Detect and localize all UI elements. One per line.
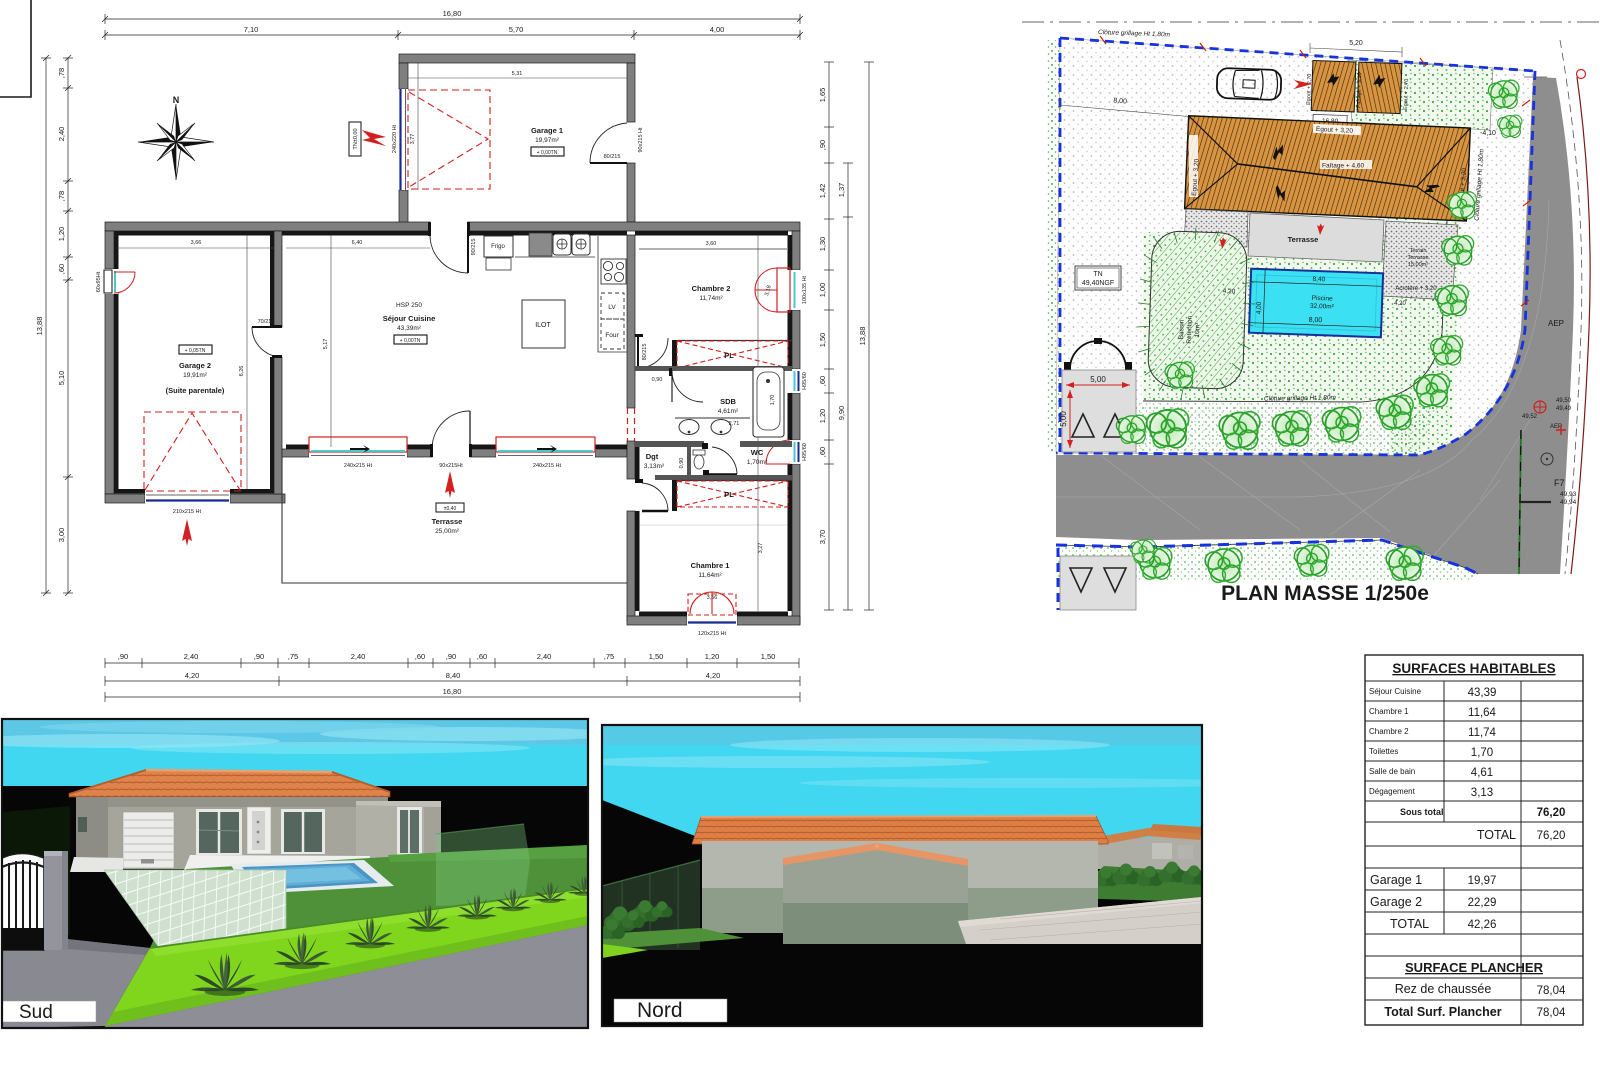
svg-text:4,00: 4,00: [1256, 301, 1263, 314]
svg-text:Chambre 1: Chambre 1: [1369, 707, 1409, 716]
svg-text:3,66: 3,66: [191, 240, 202, 246]
svg-text:Garage 2: Garage 2: [179, 361, 211, 370]
svg-text:Sud: Sud: [19, 1002, 53, 1023]
svg-text:N: N: [173, 95, 180, 105]
svg-text:Faîtage + 4,60: Faîtage + 4,60: [1322, 163, 1364, 170]
svg-text:5,31: 5,31: [512, 71, 523, 77]
svg-text:2,40: 2,40: [537, 652, 552, 661]
svg-text:8,00: 8,00: [1308, 317, 1322, 324]
svg-text:1,70: 1,70: [1471, 747, 1493, 759]
svg-text:43,39: 43,39: [1468, 687, 1497, 699]
svg-text:1,70m²: 1,70m²: [747, 459, 768, 466]
svg-text:1,50: 1,50: [761, 652, 776, 661]
svg-text:60x95Ht: 60x95Ht: [96, 271, 102, 292]
svg-text:42,26: 42,26: [1468, 919, 1497, 931]
svg-text:F7: F7: [1554, 478, 1565, 488]
svg-text:10m³: 10m³: [1194, 322, 1202, 338]
svg-text:3,70: 3,70: [818, 530, 827, 545]
svg-text:8,00: 8,00: [1113, 98, 1127, 106]
svg-text:76,20: 76,20: [1537, 830, 1566, 842]
svg-text:PL: PL: [724, 490, 734, 499]
svg-text:Piscine: Piscine: [1312, 295, 1334, 303]
svg-text:80/215: 80/215: [642, 344, 648, 361]
svg-text:+ 0,05TN: + 0,05TN: [185, 348, 206, 354]
svg-text:6,26: 6,26: [239, 366, 245, 377]
svg-text:H95/60: H95/60: [802, 372, 808, 390]
svg-text:,90: ,90: [818, 140, 827, 150]
svg-text:6,40: 6,40: [352, 240, 363, 246]
svg-text:240x215 Ht: 240x215 Ht: [533, 463, 562, 469]
svg-text:Clôture grillage Ht 1,80m: Clôture grillage Ht 1,80m: [1264, 394, 1337, 402]
svg-text:19,97m²: 19,97m²: [535, 137, 560, 144]
svg-text:2,40: 2,40: [57, 127, 66, 142]
svg-text:78,04: 78,04: [1537, 1007, 1566, 1019]
svg-text:-4,10: -4,10: [1480, 130, 1496, 137]
svg-text:Sous total: Sous total: [1400, 807, 1444, 817]
svg-text:240x215 Ht: 240x215 Ht: [344, 463, 373, 469]
svg-text:3,56: 3,56: [707, 595, 718, 601]
svg-text:1,30: 1,30: [818, 237, 827, 252]
svg-text:Frigo: Frigo: [491, 244, 505, 250]
svg-text:,60: ,60: [818, 447, 827, 457]
svg-text:SDB: SDB: [720, 397, 736, 406]
svg-text:,78: ,78: [57, 191, 66, 201]
svg-text:4,20: 4,20: [1223, 288, 1236, 295]
svg-text:Garage 2: Garage 2: [1370, 895, 1422, 909]
svg-text:TOTAL: TOTAL: [1390, 917, 1429, 931]
svg-text:TN±0,00: TN±0,00: [353, 128, 359, 149]
svg-text:Terrain: Terrain: [1410, 248, 1427, 254]
svg-text:13,88: 13,88: [858, 327, 867, 346]
svg-text:0,90: 0,90: [679, 458, 685, 469]
svg-text:1,20: 1,20: [818, 409, 827, 424]
svg-text:Séjour Cuisine: Séjour Cuisine: [383, 314, 436, 323]
svg-text:0,90: 0,90: [652, 377, 663, 383]
svg-text:,90: ,90: [254, 652, 264, 661]
svg-text:WC: WC: [751, 448, 764, 457]
svg-text:Total Surf. Plancher: Total Surf. Plancher: [1384, 1005, 1501, 1019]
svg-text:4,00: 4,00: [710, 25, 725, 34]
svg-text:Bassin: Bassin: [1178, 319, 1186, 339]
svg-text:43,39m²: 43,39m²: [397, 325, 422, 332]
svg-text:1,20: 1,20: [57, 227, 66, 242]
svg-text:1,50: 1,50: [649, 652, 664, 661]
svg-text:5,00: 5,00: [1090, 375, 1106, 384]
svg-text:Dégagement: Dégagement: [1369, 787, 1416, 796]
svg-text:3,13m²: 3,13m²: [644, 463, 665, 470]
svg-text:Séjour Cuisine: Séjour Cuisine: [1369, 687, 1422, 696]
svg-text:Garage 1: Garage 1: [1370, 873, 1422, 887]
svg-text:,90: ,90: [118, 652, 128, 661]
svg-text:SURFACES HABITABLES: SURFACES HABITABLES: [1392, 661, 1555, 676]
svg-text:4,61: 4,61: [1471, 767, 1493, 779]
svg-text:5,20: 5,20: [1349, 40, 1363, 47]
svg-text:3,00: 3,00: [57, 528, 66, 543]
svg-text:13,88: 13,88: [35, 317, 44, 336]
svg-text:,75: ,75: [288, 652, 298, 661]
svg-text:Garage 1: Garage 1: [531, 126, 563, 135]
svg-text:1,50: 1,50: [818, 333, 827, 348]
svg-text:32,00m²: 32,00m²: [1310, 303, 1335, 311]
svg-text:5,70: 5,70: [509, 25, 524, 34]
svg-text:5,10: 5,10: [57, 371, 66, 386]
svg-text:PL: PL: [724, 351, 734, 360]
svg-text:,78: ,78: [57, 68, 66, 78]
svg-text:19,97: 19,97: [1468, 875, 1497, 887]
svg-text:Chambre 1: Chambre 1: [691, 561, 730, 570]
svg-text:49,93: 49,93: [1560, 491, 1577, 498]
svg-text:25,00m²: 25,00m²: [435, 528, 460, 535]
svg-text:2,40: 2,40: [184, 652, 199, 661]
svg-text:Acrotère + 3,20: Acrotère + 3,20: [1395, 286, 1437, 292]
svg-text:16,80: 16,80: [443, 9, 462, 18]
svg-text:8,40: 8,40: [446, 671, 461, 680]
svg-text:ILOT: ILOT: [535, 322, 551, 329]
svg-text:Toilettes: Toilettes: [1369, 747, 1398, 756]
svg-text:3,13: 3,13: [1471, 787, 1493, 799]
svg-text:Rez de chaussée: Rez de chaussée: [1395, 982, 1492, 996]
svg-text:76,20: 76,20: [1537, 807, 1566, 819]
svg-text:16,80: 16,80: [443, 687, 462, 696]
svg-text:Egout + 2,70: Egout + 2,70: [1306, 74, 1313, 106]
svg-text:49,49: 49,49: [1556, 406, 1572, 412]
svg-text:90x215 Ht: 90x215 Ht: [638, 127, 644, 153]
svg-text:AEP: AEP: [1548, 319, 1564, 328]
svg-text:90/215: 90/215: [471, 239, 477, 256]
svg-text:1,65: 1,65: [818, 88, 827, 103]
svg-text:2,40: 2,40: [351, 652, 366, 661]
svg-text:+ 0,00TN: + 0,00TN: [537, 150, 558, 156]
svg-text:AEP: AEP: [1550, 424, 1562, 430]
svg-text:8,40: 8,40: [1312, 276, 1325, 283]
svg-text:4,61m²: 4,61m²: [718, 408, 739, 415]
svg-text:Chambre 2: Chambre 2: [1369, 727, 1409, 736]
svg-text:2,71: 2,71: [729, 421, 740, 427]
svg-text:240x220 Ht: 240x220 Ht: [392, 124, 398, 153]
svg-text:Egout + 2,70: Egout + 2,70: [1403, 79, 1410, 111]
svg-text:,60: ,60: [818, 376, 827, 386]
svg-text:PLAN MASSE 1/250e: PLAN MASSE 1/250e: [1221, 582, 1429, 605]
svg-text:11,74: 11,74: [1468, 727, 1497, 739]
svg-text:,90: ,90: [446, 652, 456, 661]
svg-text:Terrasse: Terrasse: [1407, 255, 1428, 261]
svg-text:Chambre 2: Chambre 2: [692, 284, 731, 293]
svg-text:5,17: 5,17: [323, 339, 329, 350]
svg-text:Salle de bain: Salle de bain: [1369, 767, 1415, 776]
svg-text:49,52: 49,52: [1522, 414, 1538, 420]
svg-text:49,40NGF: 49,40NGF: [1082, 280, 1114, 287]
svg-text:11,74m²: 11,74m²: [699, 295, 723, 302]
svg-text:,60: ,60: [415, 652, 425, 661]
svg-text:210x215 Ht: 210x215 Ht: [173, 509, 202, 515]
svg-text:Faîtage + 3,10: Faîtage + 3,10: [1356, 72, 1363, 108]
svg-text:±0,40: ±0,40: [444, 506, 457, 512]
svg-text:HSP 250: HSP 250: [396, 302, 422, 309]
svg-text:1,70: 1,70: [770, 395, 776, 406]
svg-text:1,42: 1,42: [818, 184, 827, 199]
svg-text:TN: TN: [1093, 271, 1102, 278]
svg-text:Terrasse: Terrasse: [1288, 235, 1319, 244]
svg-text:5,00: 5,00: [1059, 411, 1068, 427]
svg-text:,60: ,60: [57, 264, 66, 274]
svg-text:49,50: 49,50: [1556, 398, 1572, 404]
svg-text:TOTAL: TOTAL: [1477, 828, 1516, 842]
svg-text:Four: Four: [605, 332, 619, 339]
svg-text:1,37: 1,37: [837, 183, 846, 198]
svg-text:19,91m²: 19,91m²: [183, 372, 208, 379]
svg-text:7,10: 7,10: [244, 25, 259, 34]
svg-text:49,94: 49,94: [1560, 499, 1577, 506]
svg-text:SURFACE PLANCHER: SURFACE PLANCHER: [1405, 960, 1544, 975]
svg-text:4,20: 4,20: [706, 671, 721, 680]
svg-text:3,77: 3,77: [410, 134, 416, 145]
svg-text:,60: ,60: [477, 652, 487, 661]
svg-text:80/215: 80/215: [604, 154, 621, 160]
svg-text:LV: LV: [608, 304, 616, 311]
svg-text:+ 0,00TN: + 0,00TN: [400, 338, 421, 344]
svg-text:11,64: 11,64: [1468, 707, 1497, 719]
svg-text:120x215 Ht: 120x215 Ht: [698, 631, 727, 637]
svg-text:1,00: 1,00: [818, 283, 827, 298]
svg-text:Dgt: Dgt: [646, 452, 659, 461]
svg-text:15,00m²: 15,00m²: [1408, 262, 1428, 268]
svg-text:4,20: 4,20: [185, 671, 200, 680]
svg-text:9,90: 9,90: [837, 406, 846, 421]
svg-text:100x135 Ht: 100x135 Ht: [802, 275, 808, 304]
svg-text:11,64m²: 11,64m²: [698, 572, 722, 579]
svg-text:78,04: 78,04: [1537, 985, 1566, 997]
svg-text:3,27: 3,27: [758, 543, 764, 554]
svg-text:3,60: 3,60: [706, 241, 717, 247]
svg-text:1,20: 1,20: [705, 652, 720, 661]
svg-text:Nord: Nord: [637, 999, 683, 1022]
svg-text:,75: ,75: [604, 652, 614, 661]
svg-text:70/215: 70/215: [258, 319, 275, 325]
svg-text:(Suite parentale): (Suite parentale): [166, 386, 225, 395]
svg-text:H95/60: H95/60: [802, 443, 808, 461]
svg-text:90x215Ht: 90x215Ht: [439, 463, 463, 469]
svg-text:4,20: 4,20: [1394, 301, 1406, 307]
svg-text:Terrasse: Terrasse: [432, 517, 463, 526]
svg-text:Retention: Retention: [1186, 315, 1194, 343]
svg-text:22,29: 22,29: [1468, 897, 1497, 909]
